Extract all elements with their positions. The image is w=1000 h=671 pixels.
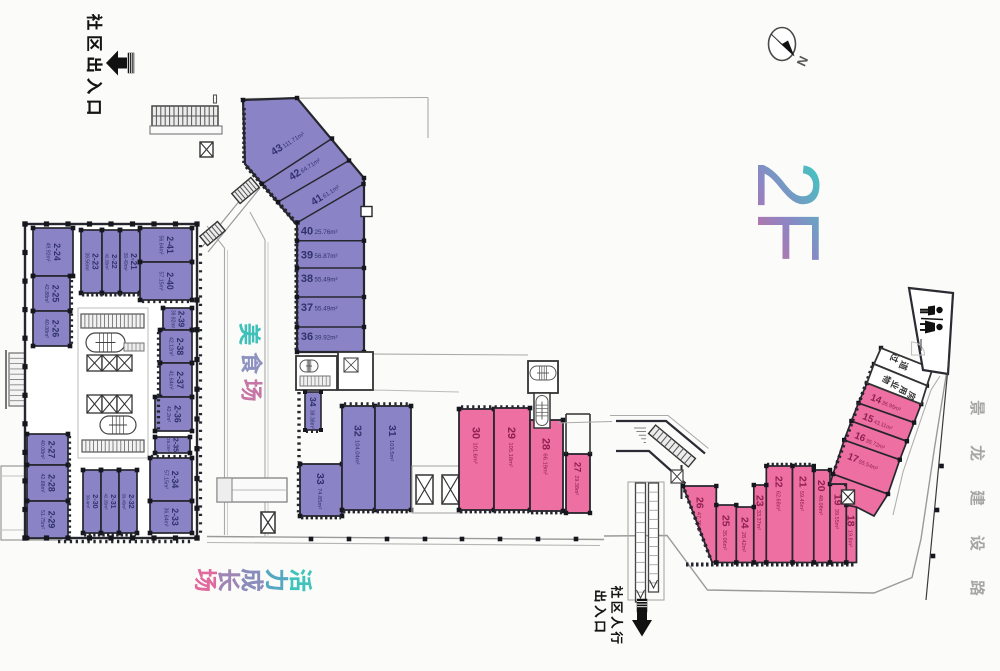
svg-text:2-28: 2-28 xyxy=(47,474,57,492)
svg-text:51.75m²: 51.75m² xyxy=(39,510,45,529)
svg-text:57.15m²: 57.15m² xyxy=(163,470,169,489)
svg-text:42.88m²: 42.88m² xyxy=(43,284,49,303)
svg-text:31: 31 xyxy=(386,425,398,437)
svg-text:103.5m²: 103.5m² xyxy=(388,440,394,461)
svg-text:59.45m²: 59.45m² xyxy=(798,491,804,511)
svg-text:2-35: 2-35 xyxy=(172,438,181,452)
svg-text:33: 33 xyxy=(314,473,326,485)
svg-text:34: 34 xyxy=(308,397,318,407)
svg-text:39.49m²: 39.49m² xyxy=(122,252,128,271)
svg-text:2-30: 2-30 xyxy=(91,494,100,508)
svg-text:2-36: 2-36 xyxy=(173,405,183,423)
svg-text:29: 29 xyxy=(505,427,517,439)
svg-text:41.64m²: 41.64m² xyxy=(168,370,174,389)
svg-text:2-38: 2-38 xyxy=(175,338,185,356)
svg-text:22: 22 xyxy=(773,476,784,488)
svg-text:39.55m²: 39.55m² xyxy=(833,509,839,529)
svg-text:49.92m²: 49.92m² xyxy=(45,242,51,261)
svg-text:25: 25 xyxy=(720,515,731,527)
svg-text:38.38m²: 38.38m² xyxy=(308,410,314,429)
svg-text:48.08m²: 48.08m² xyxy=(817,495,823,515)
svg-text:101.6m²: 101.6m² xyxy=(471,442,477,463)
svg-text:62.68m²: 62.68m² xyxy=(774,491,780,511)
svg-text:39: 39 xyxy=(301,250,313,262)
svg-text:40: 40 xyxy=(301,226,313,238)
svg-text:39.45m²: 39.45m² xyxy=(121,493,126,510)
svg-text:2-29: 2-29 xyxy=(47,511,57,529)
svg-text:74.85m²: 74.85m² xyxy=(316,488,322,509)
svg-text:24: 24 xyxy=(738,517,749,529)
svg-text:35.06m²: 35.06m² xyxy=(721,530,727,550)
svg-text:2-37: 2-37 xyxy=(175,371,185,389)
svg-text:36.64m²: 36.64m² xyxy=(163,507,169,526)
svg-text:27: 27 xyxy=(573,462,583,472)
svg-text:2-40: 2-40 xyxy=(165,272,175,290)
svg-text:42.35m²: 42.35m² xyxy=(104,253,109,270)
svg-text:18: 18 xyxy=(845,515,856,527)
svg-text:2-24: 2-24 xyxy=(52,243,62,261)
svg-text:2-39: 2-39 xyxy=(177,311,186,328)
svg-text:21: 21 xyxy=(796,476,807,488)
svg-text:56.87m²: 56.87m² xyxy=(315,253,338,260)
svg-text:29.38m²: 29.38m² xyxy=(573,475,579,495)
svg-text:39.4m²: 39.4m² xyxy=(85,495,90,509)
svg-text:36: 36 xyxy=(301,331,313,343)
svg-text:19.8m²: 19.8m² xyxy=(846,530,852,547)
svg-text:33.37m²: 33.37m² xyxy=(755,510,761,530)
svg-text:26: 26 xyxy=(693,497,704,509)
svg-text:2-26: 2-26 xyxy=(51,320,61,338)
svg-text:40.08m²: 40.08m² xyxy=(43,319,49,338)
svg-text:42.2m²: 42.2m² xyxy=(165,406,171,422)
svg-text:104.04m²: 104.04m² xyxy=(353,440,359,465)
svg-text:28.42m²: 28.42m² xyxy=(740,532,746,552)
svg-text:37: 37 xyxy=(301,302,313,314)
svg-text:2-33: 2-33 xyxy=(170,508,180,526)
svg-text:56.64m²: 56.64m² xyxy=(158,235,164,254)
svg-text:42.88m²: 42.88m² xyxy=(39,473,45,492)
svg-text:39.92m²: 39.92m² xyxy=(315,335,338,342)
svg-text:39.56m²: 39.56m² xyxy=(83,252,89,271)
svg-text:2-21: 2-21 xyxy=(129,253,138,270)
svg-text:42.12m²: 42.12m² xyxy=(168,337,174,356)
svg-text:2-25: 2-25 xyxy=(51,285,61,303)
svg-text:42.35m²: 42.35m² xyxy=(103,493,108,510)
svg-text:2F: 2F xyxy=(739,161,838,264)
svg-text:38: 38 xyxy=(301,273,313,285)
svg-text:28: 28 xyxy=(540,438,552,450)
svg-text:25.2m²: 25.2m² xyxy=(166,438,171,452)
svg-text:55.49m²: 55.49m² xyxy=(315,306,338,313)
svg-text:66.19m²: 66.19m² xyxy=(541,453,547,474)
svg-text:57.15m²: 57.15m² xyxy=(158,271,164,290)
svg-text:2-31: 2-31 xyxy=(109,494,118,508)
svg-text:2-34: 2-34 xyxy=(170,471,180,489)
svg-text:2-22: 2-22 xyxy=(110,254,119,268)
svg-text:25.76m²: 25.76m² xyxy=(315,229,338,236)
svg-text:39.92m²: 39.92m² xyxy=(169,310,175,329)
svg-text:32: 32 xyxy=(352,425,364,437)
svg-text:105.18m²: 105.18m² xyxy=(507,442,513,467)
svg-text:55.49m²: 55.49m² xyxy=(315,277,338,284)
svg-text:40.08m²: 40.08m² xyxy=(39,440,45,459)
svg-text:2-41: 2-41 xyxy=(165,236,175,254)
svg-text:19: 19 xyxy=(831,494,842,506)
svg-text:30: 30 xyxy=(470,427,482,439)
svg-text:2-23: 2-23 xyxy=(91,253,100,270)
svg-text:2-32: 2-32 xyxy=(127,494,136,508)
svg-text:20: 20 xyxy=(815,480,826,492)
svg-text:2-27: 2-27 xyxy=(47,441,57,459)
